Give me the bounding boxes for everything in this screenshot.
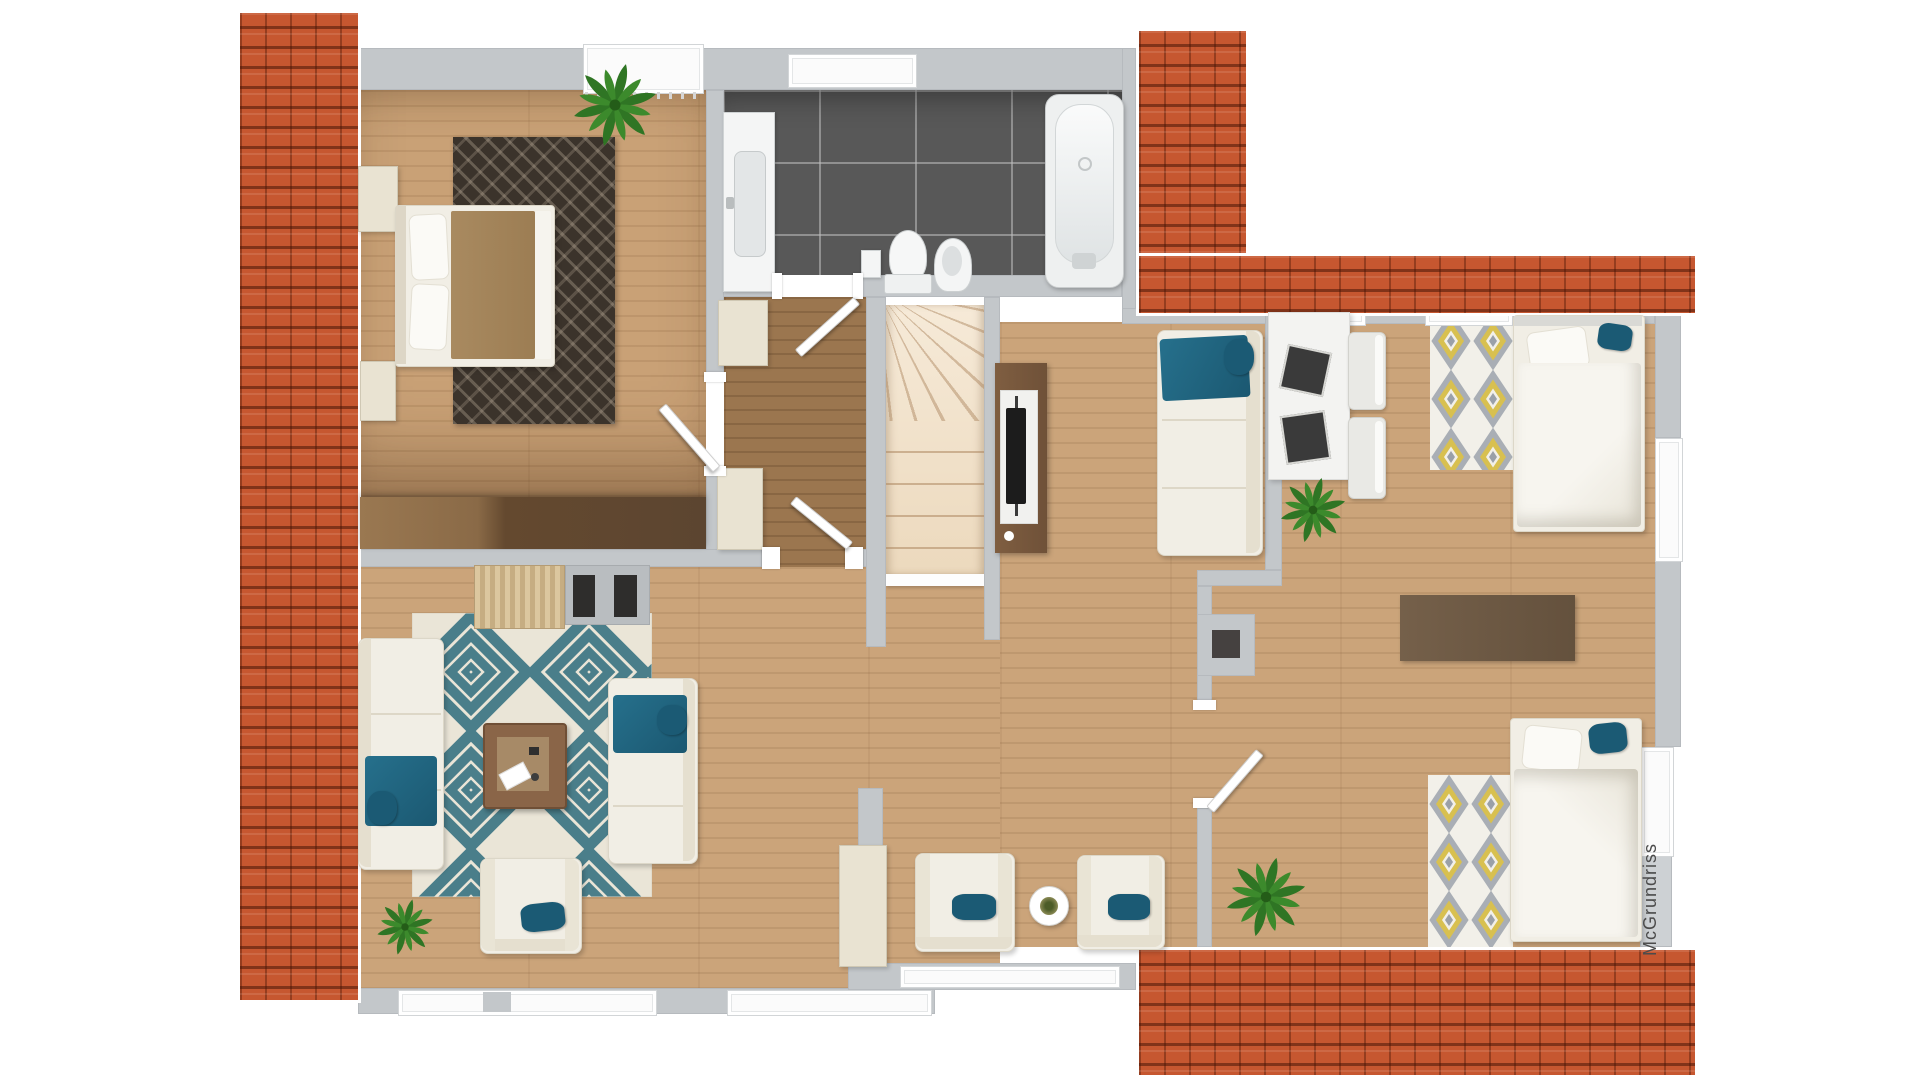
sofa-left xyxy=(358,638,444,870)
desk-chair-2-back xyxy=(1375,421,1383,493)
sofa-left-seam-1 xyxy=(371,713,441,715)
lounge-armchair-2 xyxy=(1077,855,1165,950)
nightstand-top xyxy=(358,166,398,232)
armchair-2-pillow xyxy=(1108,894,1150,920)
sofa-right-pillow xyxy=(657,705,687,735)
sofa-left-back xyxy=(359,639,371,867)
bidet xyxy=(934,238,970,294)
nightstand-bottom xyxy=(360,361,396,421)
side-table-plant xyxy=(1040,897,1058,915)
plant-master-bedroom xyxy=(569,59,661,151)
tv-screen xyxy=(1006,408,1026,504)
toilet-tank xyxy=(884,274,932,294)
vanity-faucet xyxy=(726,197,734,209)
north-exterior-wall xyxy=(358,48,1136,90)
tv-knob xyxy=(1004,531,1014,541)
bathtub-faucet xyxy=(1072,253,1096,269)
plant-kids-room xyxy=(1222,853,1310,941)
armchair-1-pillow xyxy=(952,894,996,920)
hall-cabinet-bottom xyxy=(717,468,763,550)
sofa-right xyxy=(608,678,698,864)
round-side-table xyxy=(1029,886,1069,926)
plant-living-room xyxy=(374,896,436,958)
kids-bed-top-teal-pillow xyxy=(1596,322,1633,352)
armchair-1-back xyxy=(916,937,1012,949)
bed-pillow-1 xyxy=(408,213,449,281)
toilet xyxy=(884,230,930,296)
floor-plan-canvas: McGrundriss xyxy=(0,0,1920,1080)
kids-bed-top-duvet xyxy=(1517,363,1641,527)
stove-block-1 xyxy=(573,575,595,617)
hall-cabinet-top xyxy=(718,300,768,366)
east-window-upper xyxy=(1655,438,1683,562)
table-decor-1 xyxy=(529,747,539,755)
wood-bench xyxy=(474,565,565,629)
bathroom-north-window xyxy=(788,54,917,88)
sofa-right-seam-2 xyxy=(613,805,683,807)
bed-brown-blanket xyxy=(451,211,535,359)
laptop-2 xyxy=(1280,410,1331,465)
living-door-jamb-right xyxy=(845,547,863,569)
desk-chair-2 xyxy=(1348,417,1386,499)
roof-bottom-right-strip xyxy=(1136,947,1698,1078)
kids-rug-top xyxy=(1430,312,1513,470)
east-wall-upper xyxy=(1655,308,1681,438)
kids-bed-top xyxy=(1513,315,1645,532)
armchair-2-arm-left xyxy=(1078,856,1091,947)
armchair-2-arm-right xyxy=(1149,856,1162,947)
coffee-table xyxy=(483,723,567,809)
desk xyxy=(1268,312,1350,480)
living-door-jamb-left xyxy=(762,547,780,569)
south-window-mullion xyxy=(483,992,511,1012)
bathtub-drain xyxy=(1078,157,1092,171)
winder-steps xyxy=(886,303,984,421)
east-wall-middle xyxy=(1655,560,1681,747)
vanity-basin xyxy=(734,151,766,257)
bathroom-accessory xyxy=(861,250,881,278)
sofa-left-pillow xyxy=(367,791,397,825)
partition-wall-lower xyxy=(1197,808,1212,947)
bed-pillow-2 xyxy=(408,283,449,351)
kids-bed-bottom xyxy=(1510,718,1642,942)
lounge-sofa-seam-1 xyxy=(1162,419,1246,421)
runner-rug xyxy=(1400,595,1575,661)
roof-left-strip xyxy=(237,10,361,1003)
chimney-block xyxy=(1212,630,1240,658)
tv-sideboard xyxy=(995,363,1047,553)
bath-door-jamb-left xyxy=(772,273,782,299)
bedroom-door-jamb-top xyxy=(704,372,726,382)
laptop-1 xyxy=(1279,344,1332,397)
bathroom-vanity xyxy=(723,112,775,292)
desk-chair-1-back xyxy=(1375,335,1383,405)
lounge-sofa-pillow xyxy=(1224,339,1254,375)
headboard xyxy=(396,206,406,364)
armchair-2-back xyxy=(1078,935,1162,947)
kids-rug-bottom xyxy=(1428,775,1513,947)
south-window-living-right xyxy=(727,990,932,1016)
master-bed xyxy=(395,205,555,367)
armchair-1-arm-right xyxy=(998,854,1012,949)
stairwell-west-wall xyxy=(866,297,886,647)
kids-door-jamb-top xyxy=(1193,700,1216,710)
bidet-basin xyxy=(942,246,962,276)
stair-bottom-landing-edge xyxy=(886,574,984,586)
watermark-label: McGrundriss xyxy=(1640,840,1672,958)
stair-top-landing-edge xyxy=(886,297,984,305)
bath-door-jamb-right xyxy=(853,273,863,299)
desk-chair-1 xyxy=(1348,332,1386,410)
armchair-1-arm-left xyxy=(916,854,930,949)
lounge-sofa-seam-2 xyxy=(1162,487,1246,489)
kids-bed-bottom-teal-pillow xyxy=(1588,721,1629,755)
bed-duvet-fold xyxy=(535,211,551,359)
straight-steps xyxy=(886,421,984,576)
lounge-armchair-1 xyxy=(915,853,1015,952)
kids-bed-bottom-pillow xyxy=(1521,724,1583,774)
staircase xyxy=(886,303,984,576)
living-armchair-arm-right xyxy=(565,859,579,951)
hearth-pad xyxy=(565,565,650,625)
bathtub-basin xyxy=(1055,104,1114,264)
lounge-sofa xyxy=(1157,330,1263,556)
living-armchair xyxy=(480,858,582,954)
bathroom-east-wall xyxy=(1122,48,1136,322)
bathtub xyxy=(1045,94,1124,288)
roof-top-right-horizontal xyxy=(1136,253,1698,316)
table-decor-2 xyxy=(531,773,539,781)
living-armchair-arm-left xyxy=(481,859,495,951)
living-armchair-pillow xyxy=(520,901,567,933)
kids-bed-bottom-duvet xyxy=(1514,769,1638,937)
wardrobe xyxy=(839,845,887,967)
stove-block-2 xyxy=(614,575,637,617)
plant-desk xyxy=(1277,474,1349,546)
partition-wall-jog xyxy=(1197,570,1282,586)
master-dresser xyxy=(360,497,706,549)
south-window-living-left xyxy=(398,990,657,1016)
south-window-lounge xyxy=(900,966,1120,988)
